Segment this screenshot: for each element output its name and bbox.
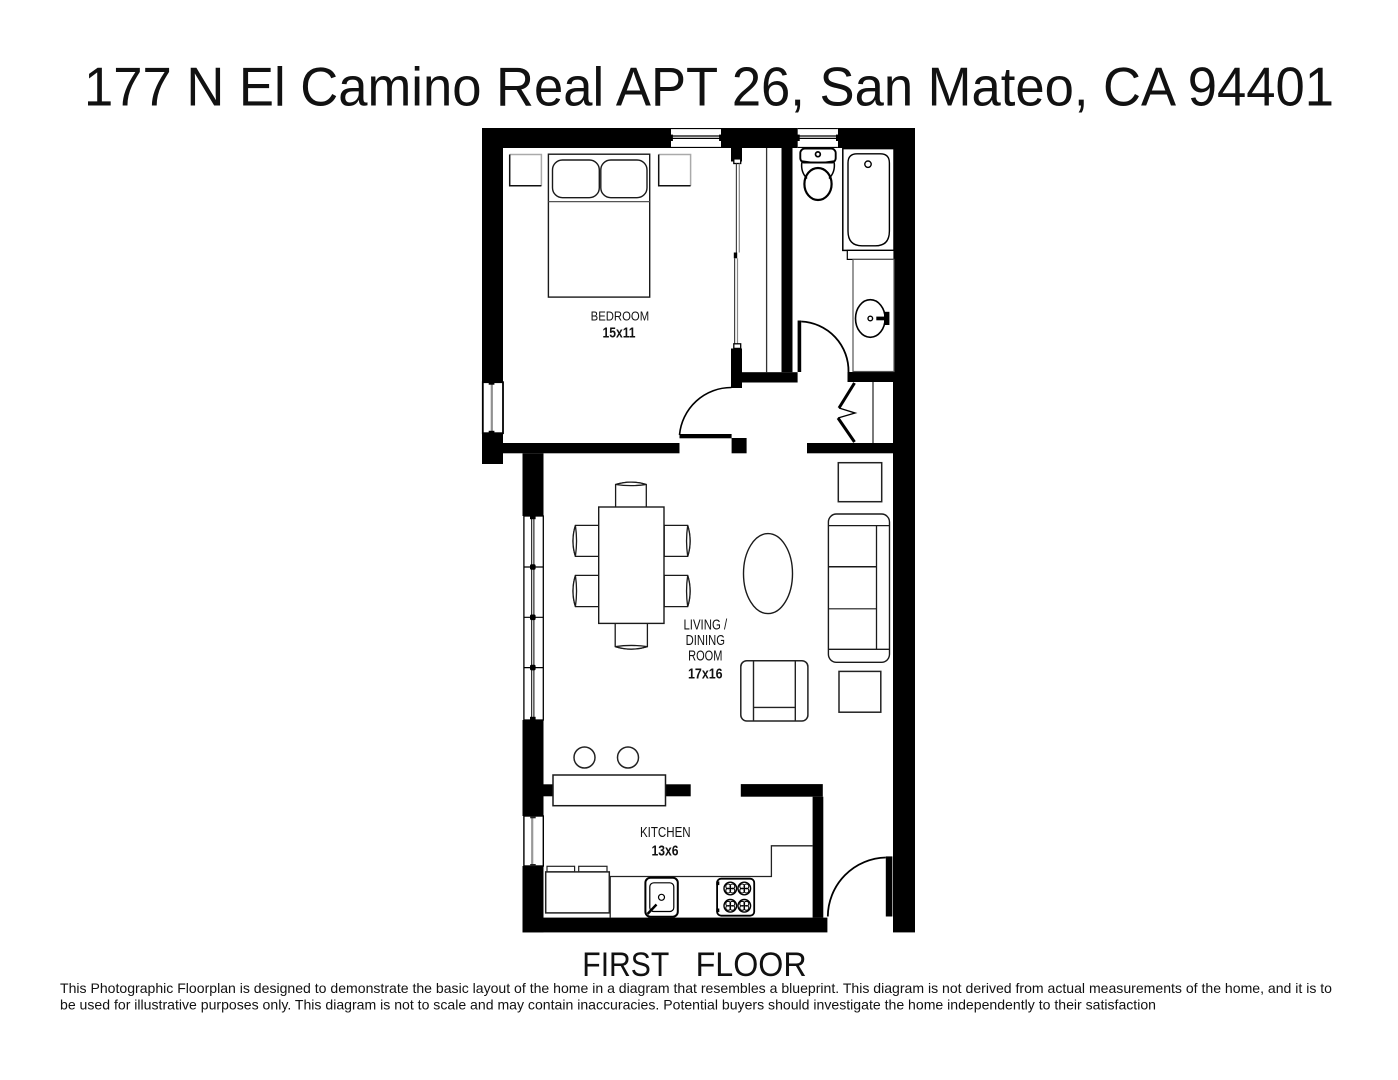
svg-text:15x11: 15x11 [603, 326, 636, 342]
svg-text:KITCHEN: KITCHEN [640, 825, 691, 841]
svg-text:DINING: DINING [686, 633, 725, 649]
svg-text:177 N El Camino Real APT 26, S: 177 N El Camino Real APT 26, San Mateo, … [84, 56, 1334, 118]
svg-text:FIRST: FIRST [582, 946, 669, 984]
svg-text:LIVING /: LIVING / [683, 617, 727, 633]
svg-text:be used for illustrative purpo: be used for illustrative purposes only. … [60, 997, 1156, 1012]
svg-text:This Photographic Floorplan is: This Photographic Floorplan is designed … [60, 981, 1332, 996]
svg-text:ROOM: ROOM [688, 649, 722, 665]
svg-text:13x6: 13x6 [652, 844, 679, 860]
svg-text:17x16: 17x16 [688, 667, 723, 683]
svg-text:BEDROOM: BEDROOM [591, 309, 650, 324]
svg-text:FLOOR: FLOOR [696, 946, 807, 984]
